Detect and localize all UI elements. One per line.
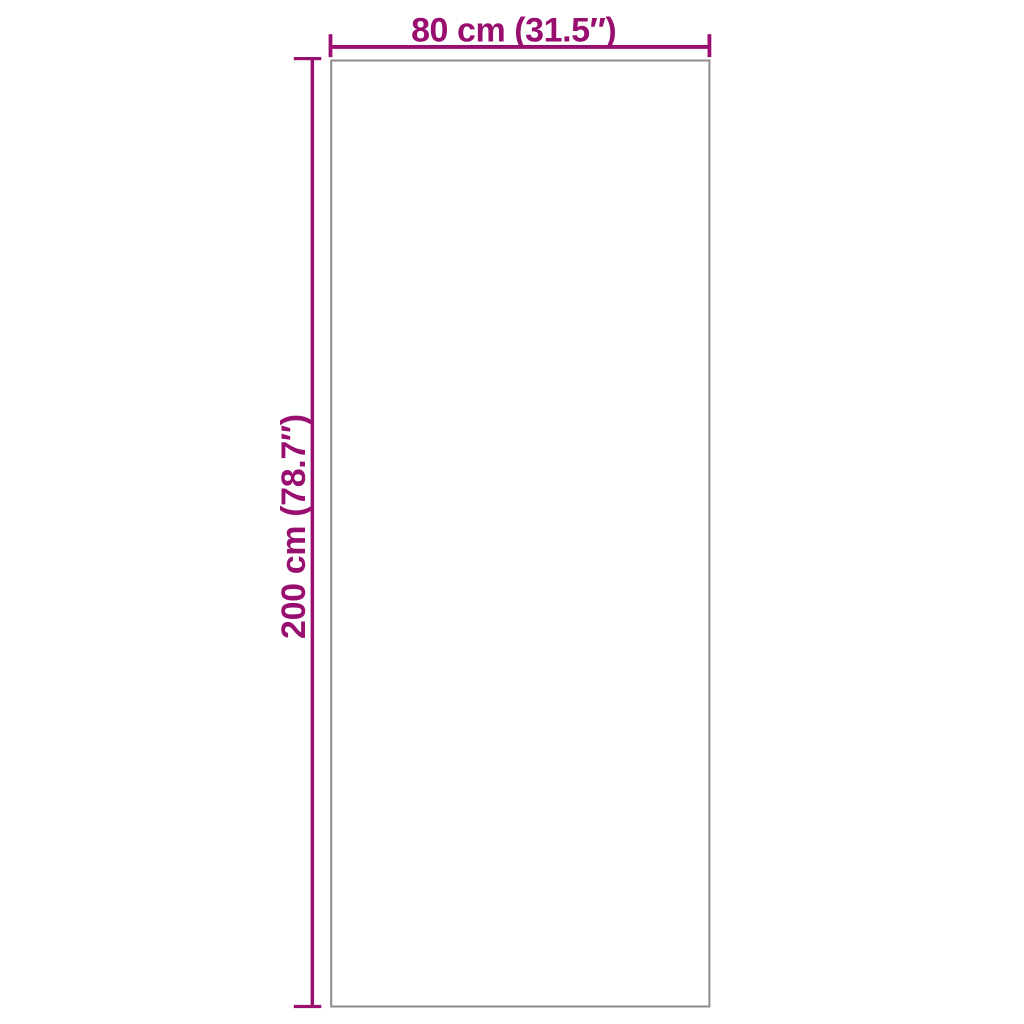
svg-text:200 cm (78.7″): 200 cm (78.7″) [275, 414, 313, 639]
svg-text:80 cm (31.5″): 80 cm (31.5″) [411, 11, 616, 49]
